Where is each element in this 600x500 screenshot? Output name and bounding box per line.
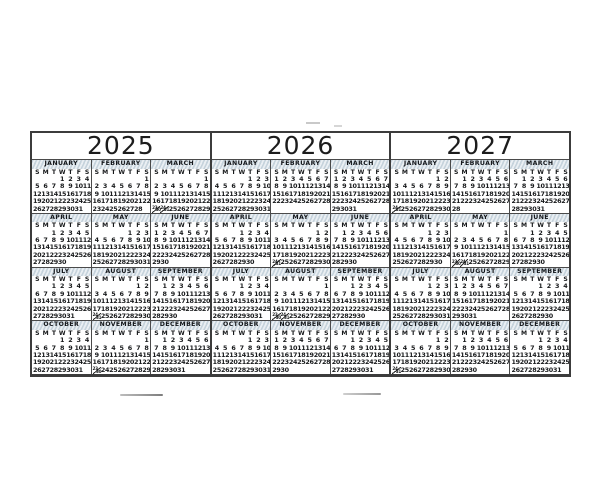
day-cell: 25 (93, 259, 101, 266)
day-cell: 30 (246, 313, 254, 320)
day-cell: 25 (477, 306, 485, 313)
day-cell: 31 (442, 313, 450, 320)
weekday-letter: W (117, 330, 125, 337)
day-cell: 24 (177, 306, 185, 313)
weekday-letter: S (33, 330, 41, 337)
day-cell: 28 (426, 367, 434, 374)
weekday-letter: S (392, 222, 400, 229)
day-cell: 26 (409, 367, 417, 374)
year-column-2026: 2026JANUARYSMTWTFS1234567891011121314151… (210, 133, 390, 374)
weekday-letter: W (417, 222, 425, 229)
day-cell: 28 (126, 313, 134, 320)
month-name: AUGUST (271, 268, 330, 277)
day-cell: 30 (434, 259, 442, 266)
day-cell: 2431 (392, 367, 400, 374)
day-cell: 29 (434, 206, 442, 213)
day-cell: 2330 (272, 313, 280, 320)
weekday-letter: M (41, 276, 49, 283)
month-name: JULY (32, 268, 91, 277)
month-grid: SMTWTFS123456789101112131415161718192021… (92, 169, 151, 213)
weekday-letter: S (33, 276, 41, 283)
weekday-letter: F (194, 169, 202, 176)
month-name: SEPTEMBER (331, 268, 390, 277)
day-cell: 31 (348, 206, 356, 213)
day-cell: 29 (528, 259, 536, 266)
day-cell: 30 (66, 206, 74, 213)
day-cell: 24 (545, 252, 553, 259)
month-name: DECEMBER (151, 321, 210, 330)
month-name: APRIL (212, 214, 271, 223)
day-cell: 26 (194, 359, 202, 366)
weekday-letter: M (340, 330, 348, 337)
weekday-letter: S (392, 276, 400, 283)
month-name: JANUARY (32, 160, 91, 169)
weekday-letter: F (134, 330, 142, 337)
day-cell: 27 (185, 206, 193, 213)
day-cell: 29 (434, 367, 442, 374)
weekday-letter: T (50, 330, 58, 337)
weekday-letter: M (221, 276, 229, 283)
day-cell: 26 (33, 367, 41, 374)
day-cell: 26 (493, 198, 501, 205)
day-cell: 25 (213, 367, 221, 374)
year-title: 2027 (391, 133, 569, 159)
weekday-letter: S (93, 222, 101, 229)
day-cell: 24 (101, 367, 109, 374)
weekday-letter: M (401, 330, 409, 337)
day-cell: 30 (460, 313, 468, 320)
weekday-letter: S (332, 330, 340, 337)
month-june-2026: JUNESMTWTFS12345678910111213141516171819… (331, 214, 390, 267)
month-name: NOVEMBER (92, 321, 151, 330)
weekday-letter: T (528, 330, 536, 337)
weekday-letter: M (281, 276, 289, 283)
day-cell: 24 (357, 252, 365, 259)
day-cell: 26 (117, 367, 125, 374)
weekday-letter: T (305, 276, 313, 283)
day-cell: 28 (238, 367, 246, 374)
day-cell: 29 (126, 259, 134, 266)
day-cell: 28 (152, 313, 160, 320)
month-name: DECEMBER (510, 321, 569, 330)
day-cell: 27 (520, 313, 528, 320)
day-cell: 26 (382, 359, 390, 366)
day-cell: 25 (177, 252, 185, 259)
weekday-letter: M (41, 222, 49, 229)
day-cell: 27 (314, 359, 322, 366)
month-grid: SMTWTFS123456789101112131415161718192021… (331, 276, 390, 320)
month-grid: SMTWTFS123456789101112131415161718192021… (391, 222, 450, 266)
day-cell: 28 (382, 198, 390, 205)
day-cell: 28 (493, 259, 501, 266)
weekday-letter: M (281, 222, 289, 229)
day-cell: 29 (536, 313, 544, 320)
weekday-letter: M (160, 169, 168, 176)
day-cell: 26 (213, 313, 221, 320)
weekday-letter: S (33, 222, 41, 229)
day-cell: 29 (314, 259, 322, 266)
day-cell: 25 (289, 313, 297, 320)
day-cell: 30 (348, 259, 356, 266)
weekday-letter: S (332, 222, 340, 229)
year-column-2027: 2027JANUARYSMTWTFS1234567891011121314151… (389, 133, 569, 374)
day-cell: 30 (142, 313, 150, 320)
weekday-letter: T (50, 169, 58, 176)
month-april-2026: APRILSMTWTFS1234567891011121314151617181… (212, 214, 271, 267)
day-cell: 29 (238, 313, 246, 320)
weekday-letter: S (213, 169, 221, 176)
month-grid: SMTWTFS123456789101112131415161718192021… (32, 222, 91, 266)
month-may-2027: MAYSMTWTFS123456789101112131415161718192… (451, 214, 510, 267)
day-cell: 31 (254, 313, 262, 320)
month-september-2027: SEPTEMBERSMTWTFS123456789101112131415161… (510, 268, 569, 321)
day-cell: 28 (194, 206, 202, 213)
month-february-2027: FEBRUARYSMTWTFS1234567891011121314151617… (451, 160, 510, 213)
day-cell: 25 (262, 252, 270, 259)
weekday-letter: S (93, 276, 101, 283)
day-cell: 27 (305, 313, 313, 320)
year-title: 2025 (32, 133, 210, 159)
day-cell: 29 (152, 259, 160, 266)
month-april-2025: APRILSMTWTFS1234567891011121314151617181… (32, 214, 91, 267)
day-cell: 28 (452, 367, 460, 374)
day-cell: 31 (553, 367, 561, 374)
month-august-2026: AUGUSTSMTWTFS123456789101112131415161718… (271, 268, 330, 321)
weekday-letter: S (511, 276, 519, 283)
weekday-letter: T (229, 169, 237, 176)
day-cell: 27 (221, 313, 229, 320)
day-cell: 26 (561, 252, 569, 259)
day-cell: 28 (502, 306, 510, 313)
day-cell: 30 (58, 313, 66, 320)
month-name: DECEMBER (331, 321, 390, 330)
weekday-letter: S (152, 276, 160, 283)
day-cell: 29 (520, 206, 528, 213)
weekday-letter: W (177, 169, 185, 176)
day-cell: 28 (229, 259, 237, 266)
day-cell: 27 (126, 367, 134, 374)
day-cell: 28 (520, 259, 528, 266)
day-cell: 31 (74, 206, 82, 213)
weekday-letter: T (109, 330, 117, 337)
month-march-2027: MARCHSMTWTFS1234567891011121314151617181… (510, 160, 569, 213)
month-grid: SMTWTFS123456789101112131415161718192021… (32, 330, 91, 374)
weekday-letter: T (289, 222, 297, 229)
day-cell: 27 (221, 259, 229, 266)
day-cell: 24 (365, 306, 373, 313)
day-cell: 25 (392, 313, 400, 320)
day-cell: 27 (502, 359, 510, 366)
day-cell: 29 (160, 367, 168, 374)
day-cell: 29 (160, 313, 168, 320)
weekday-letter: T (409, 169, 417, 176)
month-grid: SMTWTFS123456789101112131415161718192021… (212, 222, 271, 266)
day-cell: 27 (126, 206, 134, 213)
day-cell: 23 (93, 206, 101, 213)
day-cell: 26 (83, 306, 91, 313)
day-cell: 29 (460, 367, 468, 374)
day-cell: 26 (33, 206, 41, 213)
weekday-letter: M (41, 169, 49, 176)
month-name: AUGUST (451, 268, 510, 277)
day-cell: 26 (221, 206, 229, 213)
weekday-letter: T (426, 169, 434, 176)
day-cell: 25 (74, 252, 82, 259)
weekday-letter: W (238, 169, 246, 176)
month-name: OCTOBER (32, 321, 91, 330)
month-april-2027: APRILSMTWTFS1234567891011121314151617181… (391, 214, 450, 267)
month-grid: SMTWTFS123456789101112131415161718192021… (271, 276, 330, 320)
day-cell: 30 (545, 367, 553, 374)
month-july-2026: JULYSMTWTFS12345678910111213141516171819… (212, 268, 271, 321)
day-cell: 25 (365, 252, 373, 259)
day-cell: 27 (41, 367, 49, 374)
months-grid: JANUARYSMTWTFS12345678910111213141516171… (391, 159, 569, 374)
day-cell: 25 (553, 252, 561, 259)
weekday-letter: T (126, 276, 134, 283)
month-name: SEPTEMBER (510, 268, 569, 277)
month-name: JUNE (151, 214, 210, 223)
weekday-letter: M (101, 276, 109, 283)
weekday-letter: S (511, 169, 519, 176)
day-cell: 28 (238, 206, 246, 213)
month-name: APRIL (391, 214, 450, 223)
scan-artifact-line (343, 393, 381, 395)
month-june-2025: JUNESMTWTFS12345678910111213141516171819… (151, 214, 210, 267)
month-july-2025: JULYSMTWTFS12345678910111213141516171819… (32, 268, 91, 321)
day-cell: 28 (340, 313, 348, 320)
weekday-letter: S (272, 222, 280, 229)
day-cell: 25 (185, 359, 193, 366)
day-cell: 27 (382, 252, 390, 259)
day-cell: 30 (442, 206, 450, 213)
day-cell: 30 (434, 313, 442, 320)
weekday-letter: W (297, 276, 305, 283)
month-name: FEBRUARY (451, 160, 510, 169)
month-name: OCTOBER (212, 321, 271, 330)
weekday-letter: M (221, 222, 229, 229)
weekday-letter: W (297, 222, 305, 229)
day-cell: 25 (83, 359, 91, 366)
day-cell: 28 (50, 206, 58, 213)
day-cell: 24 (289, 359, 297, 366)
day-cell: 25 (109, 367, 117, 374)
month-name: MAY (271, 214, 330, 223)
day-cell: 2431 (160, 206, 168, 213)
weekday-letter: M (221, 330, 229, 337)
day-cell: 23 (281, 198, 289, 205)
scan-artifact-speck (334, 125, 342, 127)
day-cell: 30 (357, 313, 365, 320)
weekday-letter: T (409, 276, 417, 283)
day-cell: 27 (202, 306, 210, 313)
day-cell: 26 (382, 306, 390, 313)
weekday-letter: S (332, 276, 340, 283)
day-cell: 29 (332, 206, 340, 213)
day-cell: 28 (134, 367, 142, 374)
month-grid: SMTWTFS123456789101112131415161718192021… (92, 330, 151, 374)
day-cell: 30 (545, 313, 553, 320)
month-grid: SMTWTFS123456789101112131415161718192021… (92, 222, 151, 266)
weekday-letter: T (229, 222, 237, 229)
weekday-letter: M (520, 276, 528, 283)
month-grid: SMTWTFS123456789101112131415161718192021… (451, 222, 510, 266)
day-cell: 29 (50, 313, 58, 320)
day-cell: 30 (254, 206, 262, 213)
weekday-letter: M (221, 169, 229, 176)
day-cell: 30 (322, 259, 330, 266)
weekday-letter: S (511, 330, 519, 337)
day-cell: 27 (511, 259, 519, 266)
weekday-letter: T (426, 330, 434, 337)
day-cell: 27 (109, 259, 117, 266)
day-cell: 30 (340, 206, 348, 213)
day-cell: 28 (417, 313, 425, 320)
scan-artifact-speck (306, 122, 320, 124)
month-march-2025: MARCHSMTWTFS1234567891011121314151617181… (151, 160, 210, 213)
weekday-letter: T (185, 169, 193, 176)
day-cell: 25 (468, 259, 476, 266)
day-cell: 30 (281, 367, 289, 374)
day-cell: 26 (305, 198, 313, 205)
weekday-letter: M (101, 330, 109, 337)
day-cell: 2330 (152, 206, 160, 213)
month-name: FEBRUARY (271, 160, 330, 169)
day-cell: 26 (297, 313, 305, 320)
day-cell: 24 (66, 252, 74, 259)
day-cell: 27 (117, 313, 125, 320)
month-september-2026: SEPTEMBERSMTWTFS123456789101112131415161… (331, 268, 390, 321)
day-cell: 27 (409, 313, 417, 320)
day-cell: 30 (160, 259, 168, 266)
day-cell: 29 (134, 313, 142, 320)
day-cell: 26 (305, 359, 313, 366)
month-name: JANUARY (391, 160, 450, 169)
day-cell: 24 (477, 198, 485, 205)
day-cell: 2431 (392, 206, 400, 213)
scan-artifact-line (120, 394, 163, 396)
month-grid: SMTWTFS123456789101112131415161718192021… (212, 276, 271, 320)
weekday-letter: T (305, 222, 313, 229)
day-cell: 28 (41, 259, 49, 266)
weekday-letter: W (477, 222, 485, 229)
day-cell: 25 (169, 206, 177, 213)
day-cell: 29 (348, 313, 356, 320)
day-cell: 25 (109, 206, 117, 213)
day-cell: 25 (74, 306, 82, 313)
day-cell: 24 (101, 206, 109, 213)
month-name: MARCH (510, 160, 569, 169)
day-cell: 28 (322, 359, 330, 366)
day-cell: 26 (289, 259, 297, 266)
day-cell: 22 (272, 198, 280, 205)
month-december-2025: DECEMBERSMTWTFS1234567891011121314151617… (151, 321, 210, 374)
day-cell: 29 (348, 367, 356, 374)
day-cell: 30 (169, 313, 177, 320)
weekday-letter: S (33, 169, 41, 176)
day-cell: 27 (229, 367, 237, 374)
day-cell: 31 (66, 313, 74, 320)
month-grid: SMTWTFS123456789101112131415161718192021… (151, 330, 210, 374)
month-june-2027: JUNESMTWTFS12345678910111213141516171819… (510, 214, 569, 267)
day-cell: 28 (134, 206, 142, 213)
month-october-2025: OCTOBERSMTWTFS12345678910111213141516171… (32, 321, 91, 374)
month-name: AUGUST (92, 268, 151, 277)
day-cell: 27 (33, 259, 41, 266)
day-cell: 27 (373, 198, 381, 205)
weekday-letter: S (213, 330, 221, 337)
day-cell: 29 (272, 367, 280, 374)
month-november-2026: NOVEMBERSMTWTFS1234567891011121314151617… (271, 321, 330, 374)
day-cell: 24 (169, 252, 177, 259)
month-grid: SMTWTFS123456789101112131415161718192021… (271, 169, 330, 213)
day-cell: 24 (442, 252, 450, 259)
day-cell: 28 (332, 259, 340, 266)
day-cell: 29 (322, 313, 330, 320)
weekday-letter: T (126, 169, 134, 176)
weekday-letter: S (152, 169, 160, 176)
weekday-letter: S (272, 276, 280, 283)
day-cell: 26 (401, 313, 409, 320)
month-name: JUNE (331, 214, 390, 223)
day-cell: 29 (340, 259, 348, 266)
day-cell: 29 (202, 206, 210, 213)
month-grid: SMTWTFS123456789101112131415161718192021… (92, 276, 151, 320)
month-february-2026: FEBRUARYSMTWTFS1234567891011121314151617… (271, 160, 330, 213)
weekday-letter: M (340, 276, 348, 283)
day-cell: 26 (477, 259, 485, 266)
weekday-letter: S (152, 330, 160, 337)
day-cell: 27 (493, 306, 501, 313)
day-cell: 30 (58, 259, 66, 266)
month-grid: SMTWTFS123456789101112131415161718192021… (451, 276, 510, 320)
month-may-2026: MAYSMTWTFS123456789101112131415161718192… (271, 214, 330, 267)
month-name: JULY (391, 268, 450, 277)
day-cell: 26 (101, 259, 109, 266)
months-grid: JANUARYSMTWTFS12345678910111213141516171… (212, 159, 390, 374)
day-cell: 27 (314, 198, 322, 205)
day-cell: 25 (262, 306, 270, 313)
weekday-letter: M (520, 330, 528, 337)
weekday-letter: T (109, 222, 117, 229)
day-cell: 31 (536, 206, 544, 213)
day-cell: 27 (502, 198, 510, 205)
month-grid: SMTWTFS123456789101112131415161718192021… (151, 169, 210, 213)
day-cell: 28 (314, 313, 322, 320)
weekday-letter: S (452, 330, 460, 337)
day-cell: 29 (246, 206, 254, 213)
day-cell: 26 (177, 206, 185, 213)
month-grid: SMTWTFS123456789101112131415161718192021… (451, 169, 510, 213)
month-name: JANUARY (212, 160, 271, 169)
day-cell: 25 (561, 359, 569, 366)
weekday-letter: S (213, 276, 221, 283)
day-cell: 27 (417, 367, 425, 374)
weekday-letter: T (409, 222, 417, 229)
weekday-letter: T (528, 276, 536, 283)
day-cell: 28 (41, 313, 49, 320)
month-november-2027: NOVEMBERSMTWTFS1234567891011121314151617… (451, 321, 510, 374)
weekday-letter: W (417, 330, 425, 337)
month-grid: SMTWTFS123456789101112131415161718192021… (151, 276, 210, 320)
day-cell: 30 (442, 367, 450, 374)
month-july-2027: JULYSMTWTFS12345678910111213141516171819… (391, 268, 450, 321)
day-cell: 25 (373, 359, 381, 366)
day-cell: 25 (373, 306, 381, 313)
three-year-calendar: 2025JANUARYSMTWTFS1234567891011121314151… (30, 131, 571, 377)
day-cell: 29 (426, 259, 434, 266)
day-cell: 25 (281, 259, 289, 266)
